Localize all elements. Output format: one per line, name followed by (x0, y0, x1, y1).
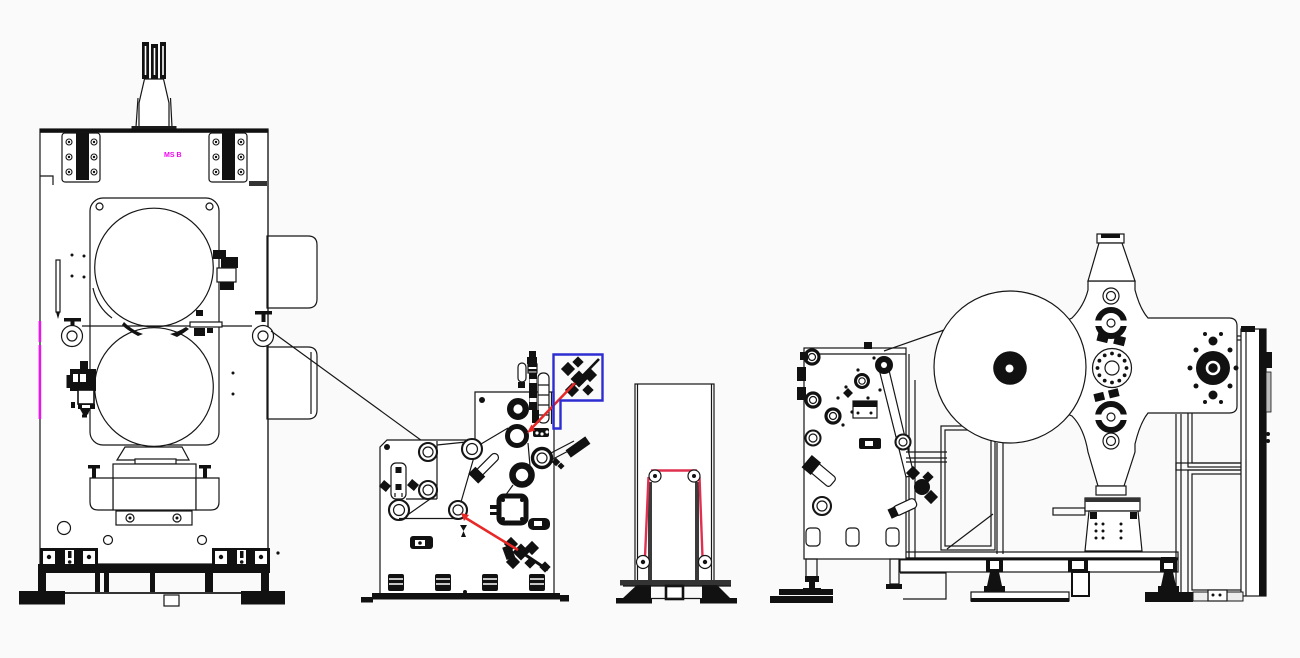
svg-text:MS B: MS B (164, 152, 182, 159)
